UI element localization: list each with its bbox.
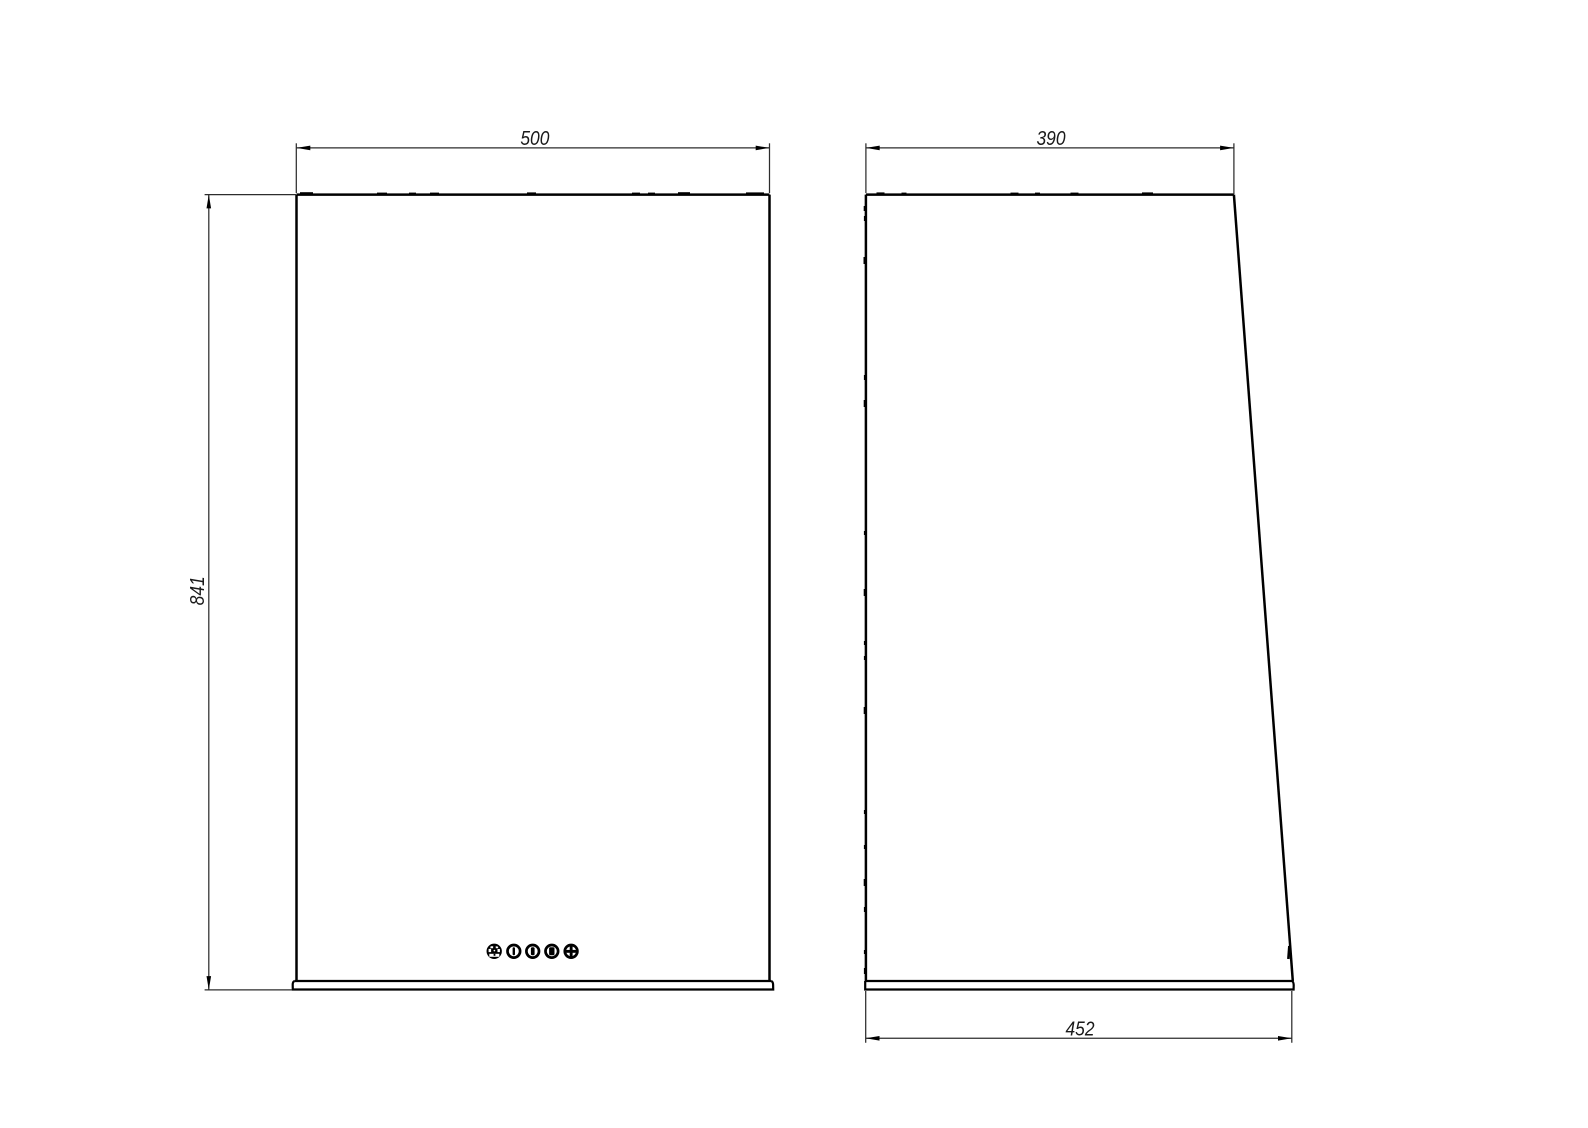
svg-text:390: 390 bbox=[1036, 128, 1065, 151]
svg-text:841: 841 bbox=[187, 576, 210, 605]
svg-text:500: 500 bbox=[520, 128, 549, 151]
svg-text:452: 452 bbox=[1065, 1018, 1094, 1041]
